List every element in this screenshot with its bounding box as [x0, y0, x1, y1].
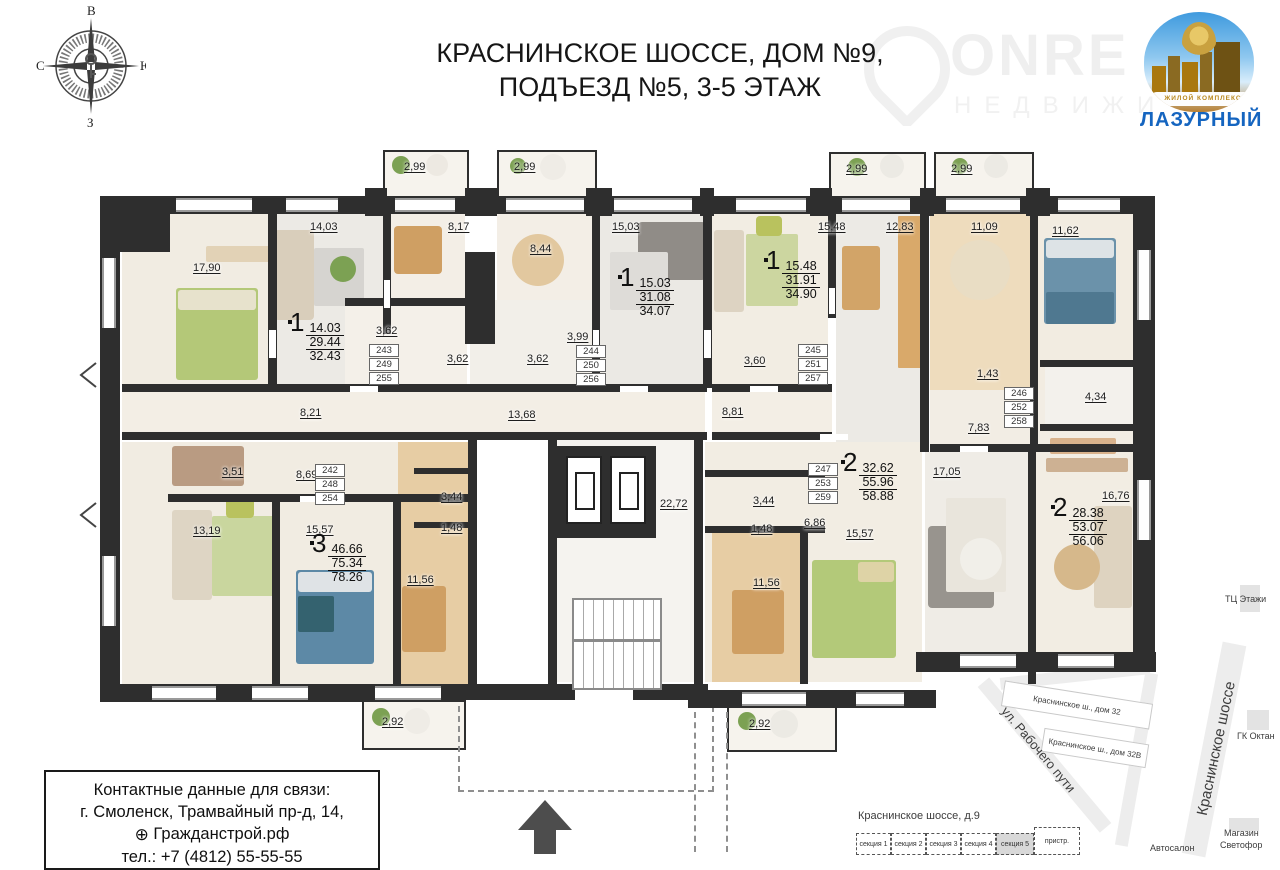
wall — [122, 432, 707, 440]
furniture — [1046, 292, 1114, 324]
window — [252, 686, 308, 700]
wall — [100, 196, 170, 252]
building-section: секция 1 — [856, 833, 891, 855]
furniture — [330, 256, 356, 282]
window — [856, 692, 904, 706]
building-section: секция 3 — [926, 833, 961, 855]
furniture — [426, 154, 448, 176]
building-section: пристр. — [1034, 827, 1080, 855]
apartment-area-value: 29.44 — [306, 335, 343, 349]
map-label: ТЦ Этажи — [1225, 594, 1266, 604]
wall — [920, 188, 934, 216]
staircase-divider — [572, 639, 662, 642]
unit-number: 253 — [808, 477, 838, 490]
contact-line2: г. Смоленск, Трамвайный пр-д, 14, — [46, 801, 378, 823]
door-opening — [620, 386, 648, 392]
staircase — [572, 598, 662, 690]
unit-number: 256 — [576, 373, 606, 386]
window — [1058, 654, 1114, 668]
apartment-info-box: 346.6675.3478.26 — [310, 541, 314, 545]
apartment-area-value: 28.38 — [1069, 507, 1106, 520]
unit-number: 251 — [798, 358, 828, 371]
furniture — [402, 586, 446, 652]
wall — [1040, 360, 1133, 367]
wall — [345, 298, 467, 306]
wall — [414, 468, 476, 474]
apartment-area-value: 32.43 — [306, 349, 343, 363]
furniture — [1046, 458, 1128, 472]
lazurny-logo-emblem: ЖИЛОЙ КОМПЛЕКС — [1144, 12, 1254, 112]
window — [742, 692, 806, 706]
unit-number: 246 — [1004, 387, 1034, 400]
door-opening — [960, 446, 988, 452]
wall — [712, 432, 832, 440]
furniture — [404, 708, 430, 734]
wall — [1026, 188, 1050, 216]
unit-number: 250 — [576, 359, 606, 372]
unit-number: 257 — [798, 372, 828, 385]
wall — [1040, 424, 1133, 431]
furniture — [960, 538, 1002, 580]
window — [286, 198, 338, 212]
elevator-cabin — [610, 456, 646, 524]
elevator-cabin-inner — [575, 472, 595, 510]
apartment-area-value: 46.66 — [328, 543, 365, 556]
window — [152, 686, 216, 700]
map-label: Светофор — [1220, 840, 1262, 850]
wall — [465, 252, 495, 344]
wall — [1028, 444, 1036, 684]
furniture — [714, 230, 744, 312]
wall-break-mark — [76, 360, 102, 390]
furniture — [756, 216, 782, 236]
map-block — [1247, 710, 1269, 730]
apartment-area-value: 32.62 — [859, 462, 896, 475]
contact-phone: тел.: +7 (4812) 55-55-55 — [46, 846, 378, 868]
complex-name: ЛАЗУРНЫЙ — [1140, 109, 1260, 132]
apartment-area-value: 14.03 — [306, 322, 343, 335]
apartment-info-box: 114.0329.4432.43 — [288, 320, 292, 324]
wall — [1133, 596, 1155, 672]
wall — [365, 188, 387, 216]
wall — [916, 652, 1156, 672]
apartment-area-value: 75.34 — [328, 556, 365, 570]
unit-number: 247 — [808, 463, 838, 476]
window — [736, 198, 806, 212]
building-section: секция 5 — [996, 833, 1034, 855]
unit-number: 258 — [1004, 415, 1034, 428]
elevator-cabin-inner — [619, 472, 639, 510]
wall — [268, 214, 277, 386]
door-opening — [750, 386, 778, 392]
onre-watermark-name: ONRE — [950, 22, 1130, 89]
window — [506, 198, 584, 212]
wall — [468, 440, 477, 686]
map-label: Краснинское шоссе, д.9 — [858, 810, 980, 822]
onre-watermark-sub: НЕДВИЖИ — [954, 92, 1167, 120]
furniture — [770, 710, 798, 738]
elevator-cabin — [566, 456, 602, 524]
window — [960, 654, 1016, 668]
unit-number: 252 — [1004, 401, 1034, 414]
compass-south-label: Ю — [140, 58, 146, 73]
furniture — [732, 590, 784, 654]
eagle-emblem-icon — [1182, 22, 1216, 62]
furniture — [984, 154, 1008, 178]
window — [1137, 480, 1151, 540]
room-floor — [345, 300, 467, 386]
apartment-area-value: 15.48 — [782, 260, 819, 273]
page-title: КРАСНИНСКОЕ ШОССЕ, ДОМ №9, ПОДЪЕЗД №5, 3… — [350, 36, 970, 104]
apartment-info-box: 115.0331.0834.07 — [618, 275, 622, 279]
unit-number: 243 — [369, 344, 399, 357]
wall — [586, 188, 612, 216]
door-opening — [820, 434, 848, 440]
door-opening — [829, 288, 835, 314]
apartment-area-value: 78.26 — [328, 570, 365, 584]
entrance-arrow-icon — [518, 800, 572, 830]
balcony — [934, 152, 1034, 200]
door-opening — [384, 280, 390, 308]
window — [614, 198, 692, 212]
unit-number: 259 — [808, 491, 838, 504]
balcony — [829, 152, 926, 200]
furniture — [172, 510, 212, 600]
furniture — [212, 516, 276, 596]
wall — [465, 188, 497, 216]
entrance-porch-outline — [458, 696, 714, 792]
window — [375, 686, 441, 700]
apartment-area-value: 31.08 — [636, 290, 673, 304]
page-title-line2: ПОДЪЕЗД №5, 3-5 ЭТАЖ — [350, 70, 970, 104]
unit-number: 254 — [315, 492, 345, 505]
map-label: Автосалон — [1150, 843, 1194, 853]
contact-line1: Контактные данные для связи: — [46, 779, 378, 801]
furniture — [880, 154, 904, 178]
furniture — [178, 290, 256, 310]
compass-north-label: С — [36, 58, 45, 73]
window — [1058, 198, 1120, 212]
apartment-area-value: 34.90 — [782, 287, 819, 301]
wall — [272, 502, 280, 686]
window — [102, 258, 116, 328]
globe-icon: ⊕ — [135, 825, 149, 844]
furniture — [1046, 240, 1114, 258]
window — [842, 198, 910, 212]
wall — [694, 440, 703, 692]
wall — [393, 502, 401, 686]
compass-rose: В Ю З С — [36, 4, 146, 130]
compass-west-label: З — [87, 115, 94, 130]
contact-site: ⊕ Гражданстрой.рф — [46, 823, 378, 846]
wall — [703, 214, 712, 388]
apartment-area-value: 53.07 — [1069, 520, 1106, 534]
door-opening — [350, 386, 378, 392]
unit-number: 245 — [798, 344, 828, 357]
wall — [383, 214, 391, 334]
wall — [705, 470, 825, 477]
door-opening — [704, 330, 711, 358]
apartment-area-value: 31.91 — [782, 273, 819, 287]
apartment-area-value: 34.07 — [636, 304, 673, 318]
apartment-area-value: 56.06 — [1069, 534, 1106, 548]
window — [395, 198, 455, 212]
furniture — [950, 240, 1010, 300]
furniture — [1054, 544, 1100, 590]
wall — [700, 188, 714, 216]
floorplan-page: { "title": { "line1": "КРАСНИНСКОЕ ШОССЕ… — [0, 0, 1280, 854]
wall — [920, 214, 929, 452]
unit-number: 255 — [369, 372, 399, 385]
furniture — [206, 246, 270, 262]
lazurny-logo: ЖИЛОЙ КОМПЛЕКС ЛАЗУРНЫЙ — [1140, 12, 1260, 140]
window — [102, 556, 116, 626]
furniture — [540, 154, 566, 180]
room-floor — [122, 390, 705, 434]
window — [1137, 250, 1151, 320]
window — [176, 198, 252, 212]
unit-number: 248 — [315, 478, 345, 491]
porch-side-outline — [694, 712, 728, 852]
furniture — [898, 216, 922, 368]
compass-east-label: В — [87, 4, 96, 18]
unit-number: 249 — [369, 358, 399, 371]
unit-number: 242 — [315, 464, 345, 477]
furniture — [858, 562, 894, 582]
apartment-info-box: 115.4831.9134.90 — [764, 258, 768, 262]
apartment-info-box: 232.6255.9658.88 — [841, 460, 845, 464]
entrance-arrow-stem — [534, 830, 556, 854]
apartment-area-value: 58.88 — [859, 489, 896, 503]
window — [946, 198, 1020, 212]
map-label: ГК Октан — [1237, 731, 1275, 741]
furniture — [298, 596, 334, 632]
furniture — [512, 234, 564, 286]
furniture — [842, 246, 880, 310]
building-section: секция 4 — [961, 833, 996, 855]
apartment-area-value: 55.96 — [859, 475, 896, 489]
page-title-line1: КРАСНИНСКОЕ ШОССЕ, ДОМ №9, — [350, 36, 970, 70]
complex-type-banner: ЖИЛОЙ КОМПЛЕКС — [1150, 92, 1254, 106]
contact-box: Контактные данные для связи: г. Смоленск… — [44, 770, 380, 870]
door-opening — [269, 330, 276, 358]
unit-number: 244 — [576, 345, 606, 358]
wall — [800, 528, 808, 684]
apartment-area-value: 15.03 — [636, 277, 673, 290]
wall — [810, 188, 832, 216]
apartment-info-box: 228.3853.0756.06 — [1051, 505, 1055, 509]
map-label: Магазин — [1224, 828, 1259, 838]
map-building-label: Краснинское ш., дом 32В — [1048, 736, 1142, 760]
wall-break-mark — [76, 500, 102, 530]
map-building-label: Краснинское ш., дом 32 — [1033, 694, 1122, 717]
building-section: секция 2 — [891, 833, 926, 855]
furniture — [394, 226, 442, 274]
